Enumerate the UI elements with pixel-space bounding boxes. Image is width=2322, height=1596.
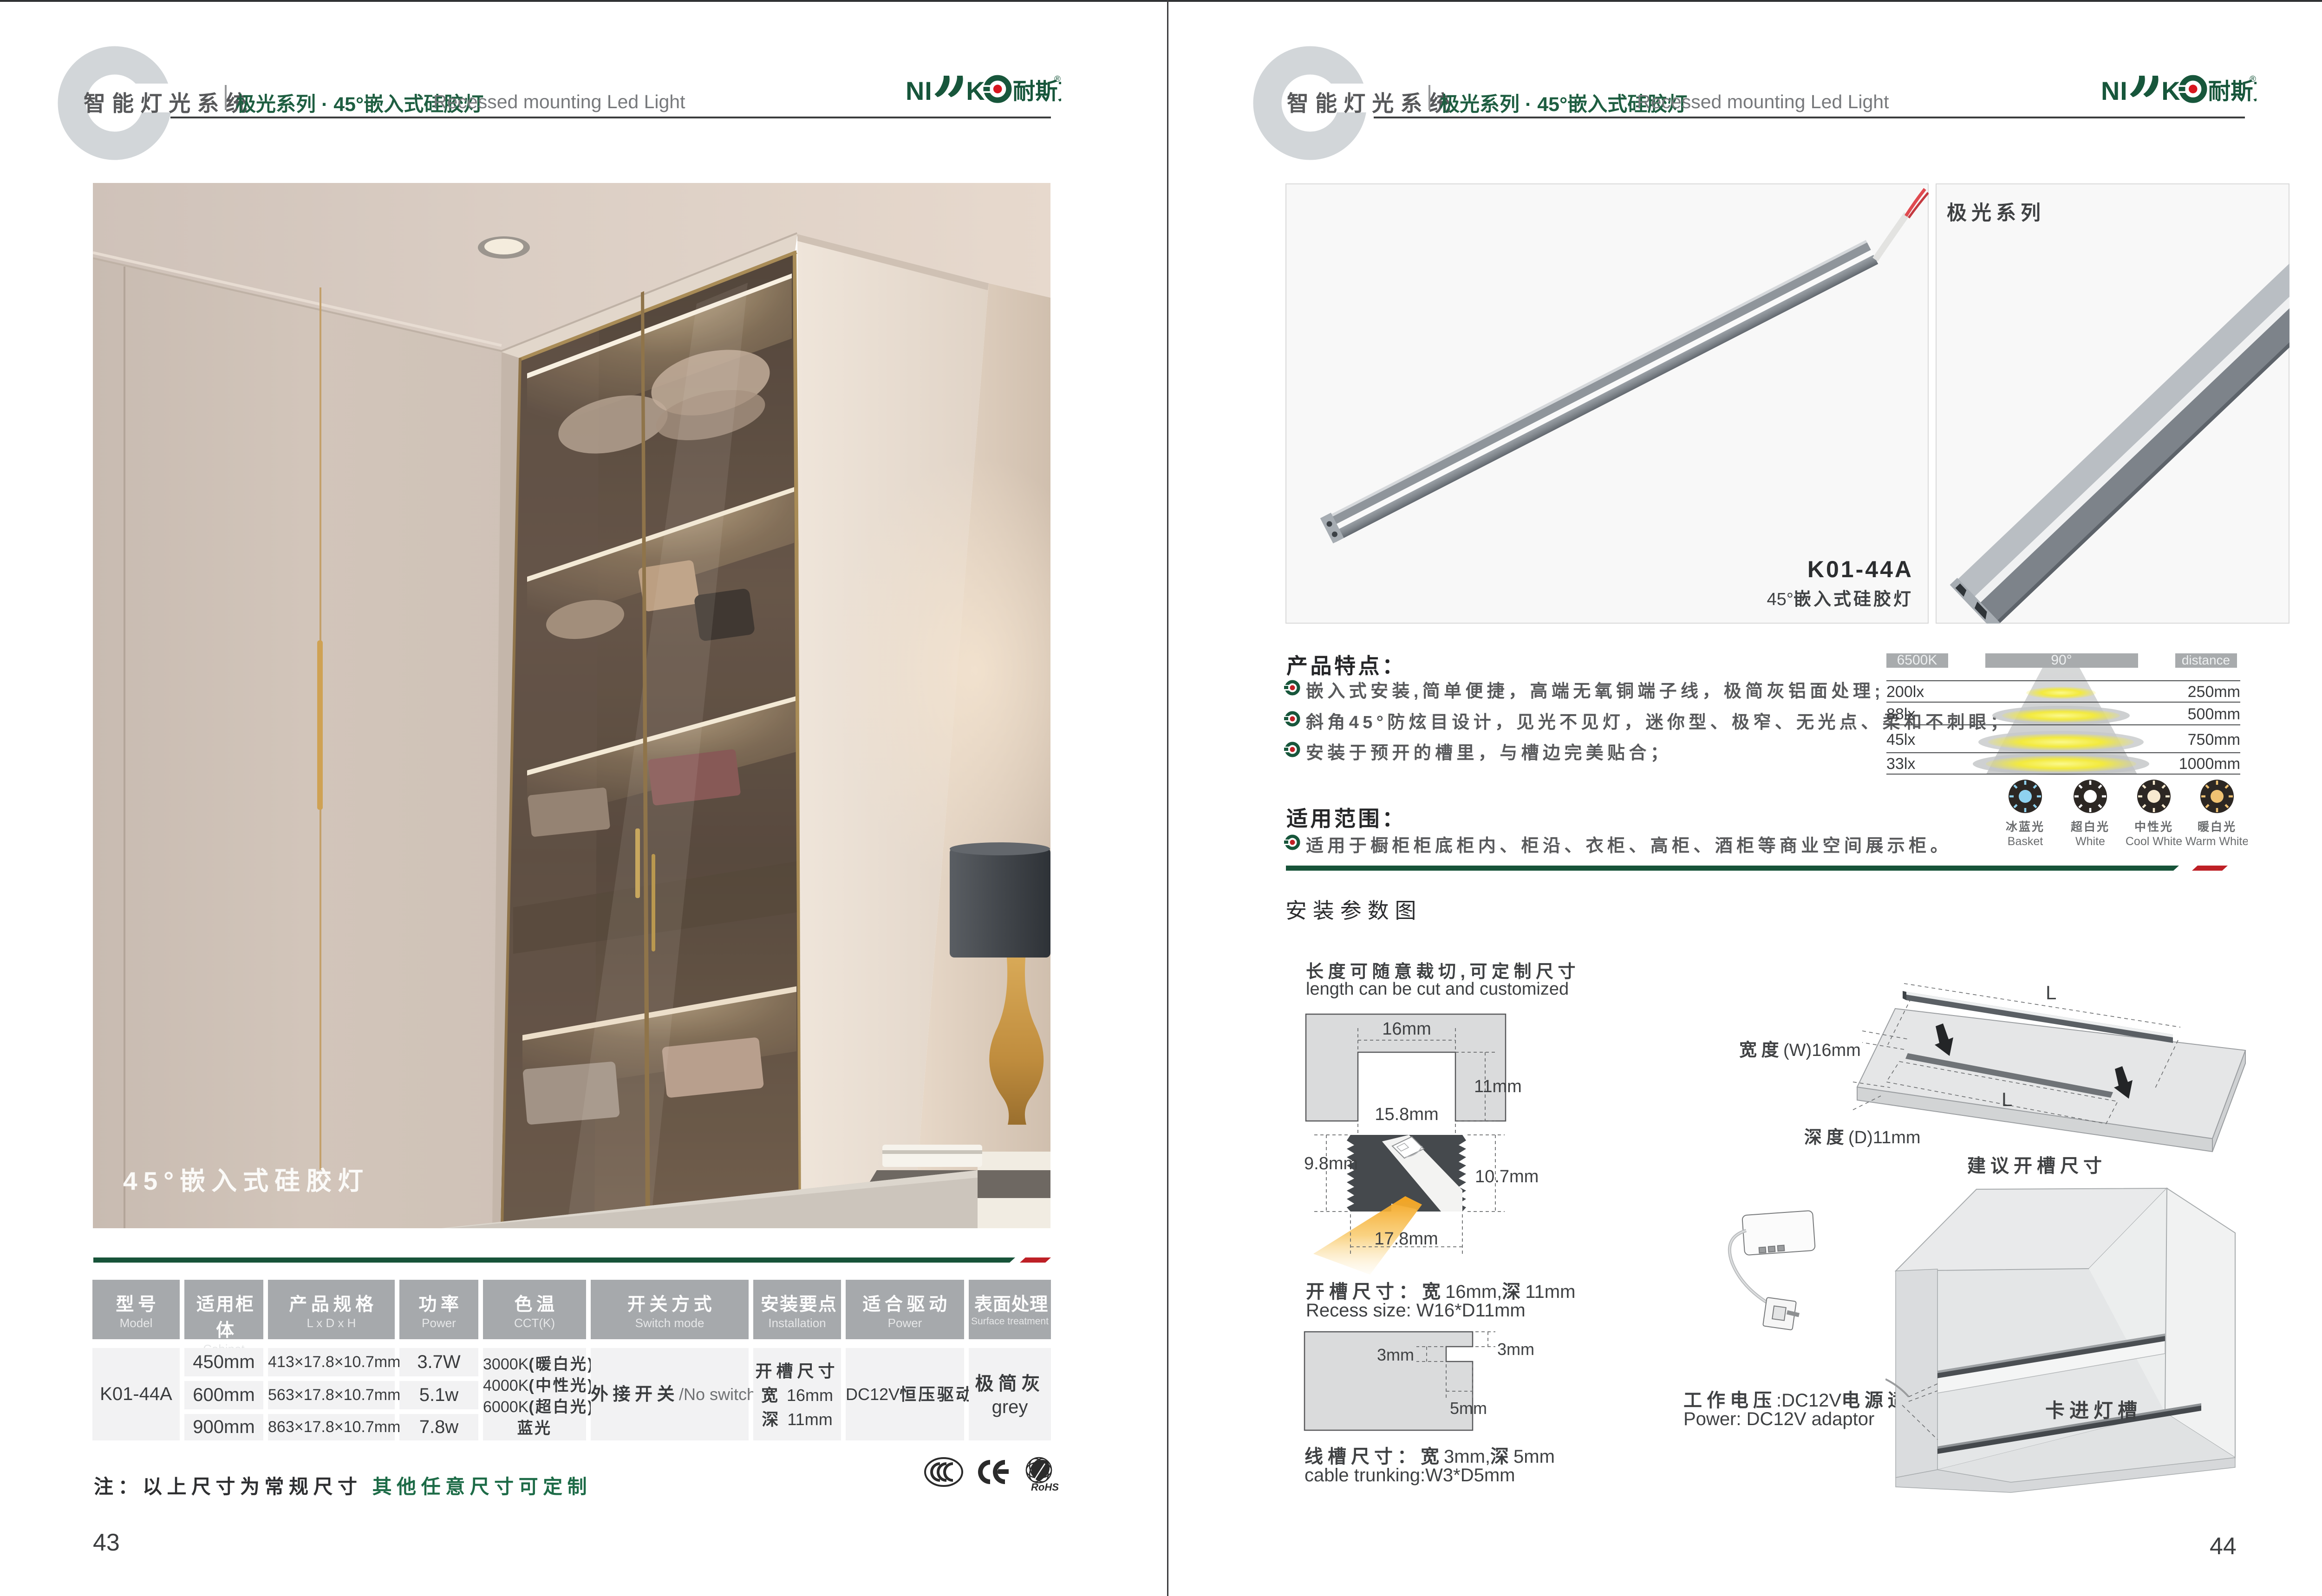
svg-text:卡进灯槽: 卡进灯槽 (2045, 1400, 2142, 1421)
svg-text:NI: NI (2101, 77, 2128, 105)
svg-text:®: ® (2250, 74, 2256, 84)
svg-text:K01-44A: K01-44A (1807, 556, 1913, 582)
svg-text:6500K: 6500K (1897, 652, 1937, 668)
svg-text:冰蓝光: 冰蓝光 (2006, 821, 2045, 834)
svg-text:1000mm: 1000mm (2179, 755, 2240, 773)
svg-text:45lx: 45lx (1886, 731, 1915, 749)
svg-text:超白光: 超白光 (2071, 820, 2110, 834)
svg-text:Basket: Basket (2008, 835, 2043, 847)
svg-text:3mm: 3mm (1377, 1345, 1414, 1364)
svg-text:L: L (2002, 1088, 2012, 1110)
svg-text:White: White (2075, 835, 2105, 847)
svg-text:L: L (2046, 982, 2056, 1003)
svg-text:暖白光: 暖白光 (2198, 820, 2237, 834)
svg-text:16mm: 16mm (1382, 1019, 1431, 1039)
svg-text:RoHS: RoHS (1031, 1481, 1059, 1493)
svg-text:15.8mm: 15.8mm (1375, 1105, 1438, 1124)
svg-text:45°嵌入式硅胶灯: 45°嵌入式硅胶灯 (1767, 590, 1913, 609)
svg-text:11mm: 11mm (1474, 1077, 1522, 1096)
svg-text:distance: distance (2182, 653, 2230, 667)
svg-text:45°嵌入式硅胶灯: 45°嵌入式硅胶灯 (123, 1166, 369, 1195)
svg-text:250mm: 250mm (2188, 683, 2240, 701)
svg-text:®: ® (1054, 74, 1061, 84)
svg-text:5mm: 5mm (1450, 1399, 1487, 1418)
svg-text:NI: NI (906, 77, 933, 105)
svg-text:33lx: 33lx (1886, 755, 1915, 773)
svg-text:中性光: 中性光 (2134, 821, 2173, 834)
svg-text:Cool White: Cool White (2126, 835, 2182, 847)
svg-text:500mm: 500mm (2188, 705, 2240, 723)
svg-text:90°: 90° (2051, 652, 2072, 668)
svg-text:750mm: 750mm (2188, 731, 2240, 749)
svg-text:3mm: 3mm (1497, 1340, 1534, 1359)
svg-text:17.8mm: 17.8mm (1374, 1229, 1438, 1249)
svg-text:88lx: 88lx (1886, 705, 1915, 723)
svg-text:极光系列: 极光系列 (1947, 202, 2045, 224)
svg-text:200lx: 200lx (1886, 683, 1924, 701)
svg-text:Warm White: Warm White (2185, 835, 2248, 847)
svg-text:9.8mm: 9.8mm (1304, 1154, 1358, 1173)
svg-text:10.7mm: 10.7mm (1475, 1167, 1539, 1186)
